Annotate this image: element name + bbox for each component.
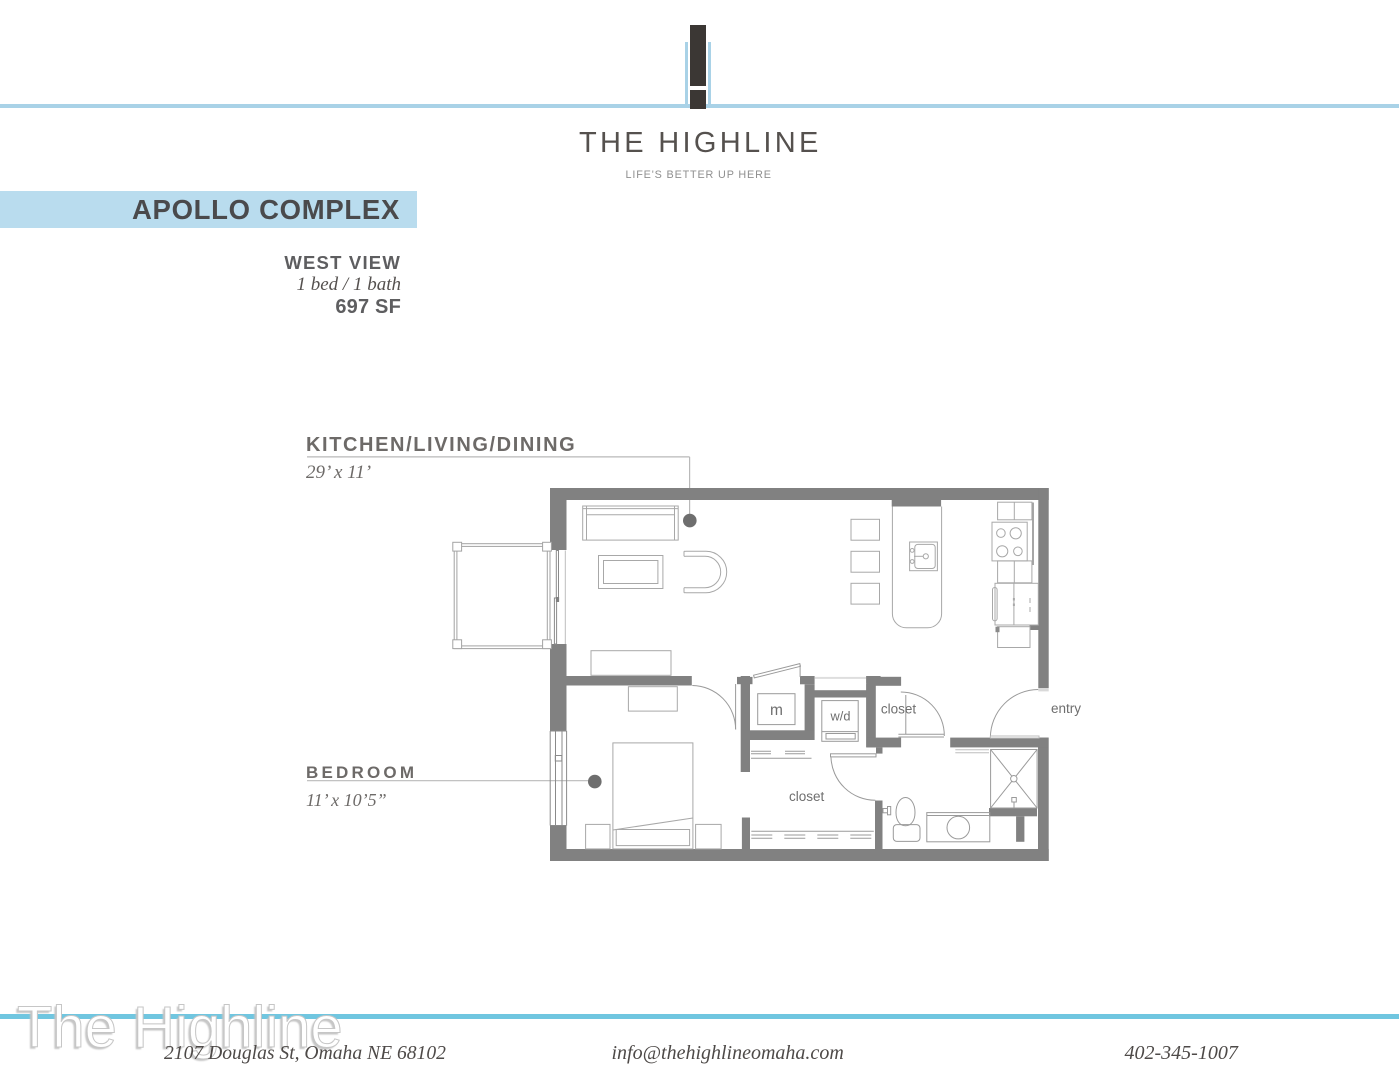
svg-text:closet: closet — [881, 702, 917, 717]
svg-text:closet: closet — [789, 789, 825, 804]
svg-text:m: m — [770, 702, 783, 719]
svg-text:entry: entry — [1051, 701, 1081, 716]
svg-text:w/d: w/d — [830, 709, 851, 724]
